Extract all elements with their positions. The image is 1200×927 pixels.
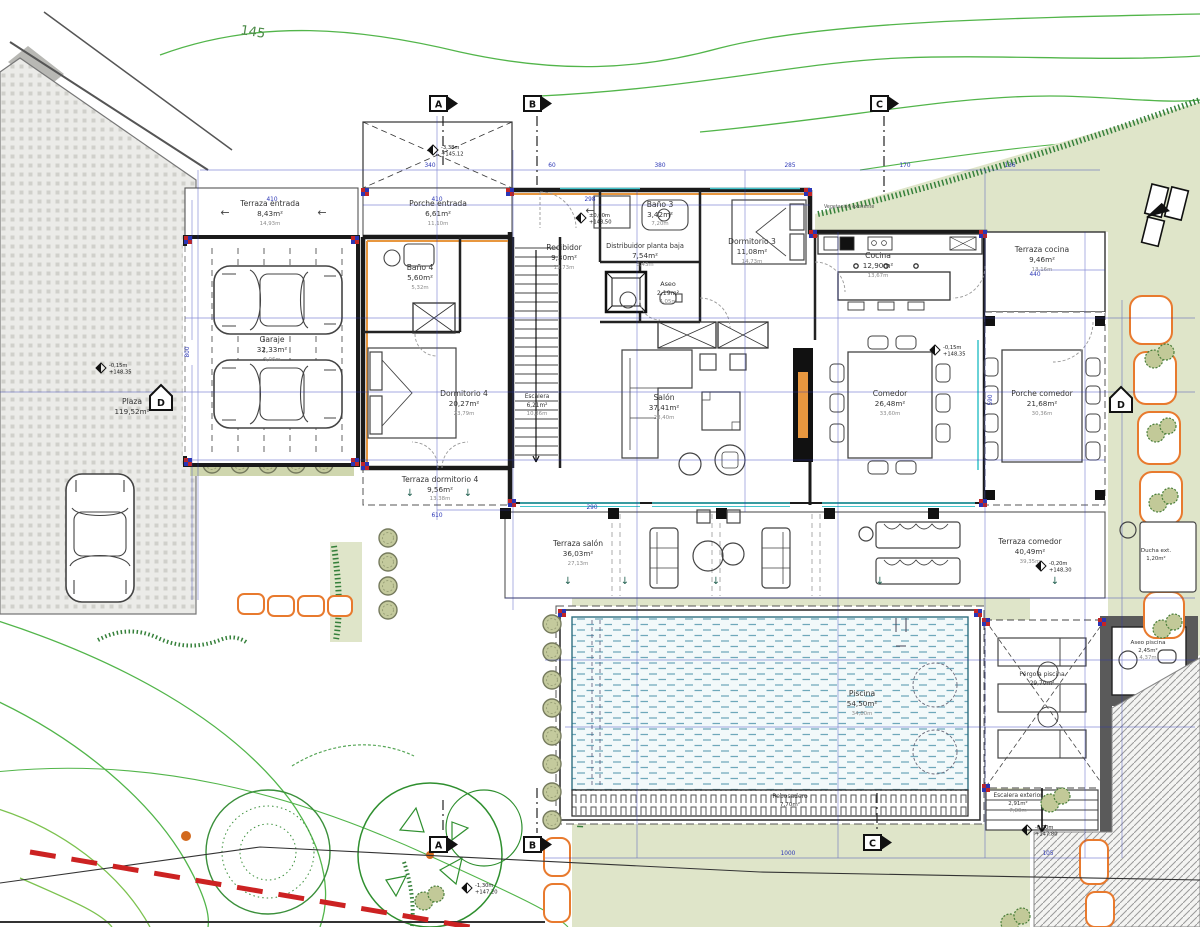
svg-text:60: 60: [548, 163, 556, 169]
svg-text:2,45m²: 2,45m²: [1138, 647, 1157, 654]
svg-text:2,91m²: 2,91m²: [1008, 800, 1027, 807]
svg-text:9,46m²: 9,46m²: [1029, 255, 1055, 264]
car-2: [214, 360, 342, 428]
svg-text:5,60m²: 5,60m²: [407, 273, 433, 282]
svg-text:40,49m²: 40,49m²: [1015, 547, 1046, 556]
svg-text:Terraza dormitorio 4: Terraza dormitorio 4: [401, 475, 479, 484]
svg-text:+148,50: +148,50: [589, 220, 612, 226]
floor-plan-canvas: ← ← ← ↓↓ ↓↓ ↓↓ ↓ 145 Vegetación existent…: [0, 0, 1200, 927]
svg-text:23,79m: 23,79m: [454, 411, 475, 417]
svg-text:-1,30m: -1,30m: [475, 883, 493, 889]
svg-text:34,80m: 34,80m: [852, 711, 873, 717]
svg-text:+145,12: +145,12: [441, 152, 464, 158]
svg-text:4,05m: 4,05m: [659, 299, 676, 305]
interior-stair: [515, 248, 558, 462]
svg-text:800: 800: [185, 346, 191, 357]
svg-text:C: C: [869, 839, 876, 850]
svg-text:12,90m²: 12,90m²: [863, 261, 894, 270]
svg-text:7,70m²: 7,70m²: [780, 801, 800, 808]
fireplace-core: [798, 372, 808, 438]
contour-elevation-label: 145: [239, 23, 266, 42]
section-marker-b-top: B: [524, 96, 552, 111]
room-label-recibidor: Recibidor9,30m²13,73m: [546, 243, 582, 271]
svg-text:Dormitorio 3: Dormitorio 3: [728, 237, 776, 246]
svg-text:Salón: Salón: [653, 393, 674, 402]
svg-text:Terraza comedor: Terraza comedor: [997, 537, 1062, 546]
svg-text:54,50m²: 54,50m²: [847, 699, 878, 708]
svg-text:Baño 3: Baño 3: [647, 200, 674, 209]
svg-text:11,10m: 11,10m: [428, 221, 449, 227]
level-marker-lateral: -0,15m+148,35: [930, 345, 966, 358]
svg-text:380: 380: [654, 163, 665, 169]
svg-text:Distribuidor planta baja: Distribuidor planta baja: [606, 242, 684, 250]
svg-text:Terraza cocina: Terraza cocina: [1014, 245, 1069, 254]
svg-text:7,54m²: 7,54m²: [632, 251, 658, 260]
svg-text:290: 290: [586, 505, 597, 511]
svg-text:Ducha ext.: Ducha ext.: [1141, 548, 1172, 554]
svg-text:±0,00m: ±0,00m: [589, 213, 610, 219]
svg-text:590: 590: [988, 394, 994, 405]
svg-text:←: ←: [317, 206, 326, 219]
svg-text:1,20m²: 1,20m²: [1146, 555, 1165, 562]
svg-text:↓: ↓: [564, 576, 572, 587]
trees: [0, 745, 522, 927]
svg-text:-0,20m: -0,20m: [1049, 561, 1067, 567]
svg-text:33,60m: 33,60m: [880, 411, 901, 417]
svg-text:A: A: [435, 100, 443, 111]
svg-text:↓: ↓: [876, 576, 884, 587]
kitchen-fittings: [818, 234, 982, 310]
svg-text:6,61m²: 6,61m²: [425, 209, 451, 218]
floor-plan-page: ← ← ← ↓↓ ↓↓ ↓↓ ↓ 145 Vegetación existent…: [0, 0, 1200, 927]
svg-text:440: 440: [1029, 272, 1040, 278]
svg-text:Garaje: Garaje: [259, 335, 284, 344]
svg-text:+148,35: +148,35: [109, 370, 132, 376]
room-label-salon: Salón37,41m²28,40m: [649, 393, 680, 421]
section-marker-a-top: A: [430, 96, 458, 111]
svg-text:Aseo: Aseo: [660, 280, 676, 288]
svg-text:-0,70m: -0,70m: [1035, 825, 1053, 831]
svg-text:+148,30: +148,30: [1049, 568, 1072, 574]
svg-text:↓: ↓: [712, 576, 720, 587]
svg-text:5,32m: 5,32m: [411, 285, 428, 291]
svg-text:410: 410: [431, 197, 442, 203]
svg-text:Piscina: Piscina: [849, 689, 875, 698]
svg-text:Escalera: Escalera: [525, 394, 550, 400]
svg-text:340: 340: [424, 163, 435, 169]
svg-text:Pérgola piscina: Pérgola piscina: [1019, 671, 1065, 678]
svg-text:Porche comedor: Porche comedor: [1011, 389, 1073, 398]
svg-text:14,93m: 14,93m: [260, 221, 281, 227]
svg-text:↓: ↓: [406, 488, 414, 499]
svg-text:285: 285: [784, 163, 795, 169]
svg-text:↓: ↓: [1051, 576, 1059, 587]
svg-text:9,56m²: 9,56m²: [427, 485, 453, 494]
svg-text:-3,38m: -3,38m: [441, 145, 459, 151]
svg-text:↓: ↓: [621, 576, 629, 587]
svg-text:105: 105: [1042, 851, 1053, 857]
svg-text:Terraza salón: Terraza salón: [552, 539, 603, 548]
svg-text:Aseo piscina: Aseo piscina: [1130, 640, 1165, 646]
svg-text:2,19m²: 2,19m²: [657, 290, 680, 297]
svg-text:8,43m²: 8,43m²: [257, 209, 283, 218]
svg-text:37,41m²: 37,41m²: [649, 403, 680, 412]
svg-text:Comedor: Comedor: [873, 389, 908, 398]
svg-text:32,33m²: 32,33m²: [257, 345, 288, 354]
svg-text:136: 136: [1004, 163, 1015, 169]
svg-text:Dormitorio 4: Dormitorio 4: [440, 389, 488, 398]
svg-text:7,20m: 7,20m: [651, 221, 668, 227]
car-1: [214, 266, 342, 334]
svg-text:11,08m²: 11,08m²: [737, 247, 768, 256]
svg-text:10,36m: 10,36m: [527, 411, 548, 417]
svg-text:13,38m: 13,38m: [430, 496, 451, 502]
svg-text:9,06m: 9,06m: [263, 357, 280, 363]
svg-text:36,03m²: 36,03m²: [563, 549, 594, 558]
entrance-canopy: [363, 122, 512, 188]
svg-text:610: 610: [431, 513, 442, 519]
room-label-bano3: Baño 33,42m²7,20m: [647, 200, 674, 227]
svg-text:Recibidor: Recibidor: [546, 243, 582, 252]
svg-text:Cocina: Cocina: [865, 251, 891, 260]
svg-text:Baño 4: Baño 4: [407, 263, 434, 272]
svg-text:13,73m: 13,73m: [554, 265, 575, 271]
vegetation-label: Vegetación existente: [824, 203, 874, 210]
svg-text:3,42m²: 3,42m²: [647, 210, 673, 219]
pool: [572, 617, 968, 790]
svg-text:Rebosadero: Rebosadero: [772, 793, 808, 800]
svg-text:29,70m²: 29,70m²: [1030, 680, 1055, 687]
room-label-aseo: Aseo2,19m²4,05m: [657, 280, 680, 305]
level-marker-recibidor: ±0,00m+148,50: [576, 213, 612, 226]
svg-text:-0,15m: -0,15m: [943, 345, 961, 351]
svg-text:170: 170: [899, 163, 910, 169]
wardrobes: [413, 303, 768, 348]
svg-text:13,67m: 13,67m: [868, 273, 889, 279]
svg-text:D: D: [1117, 400, 1125, 411]
svg-text:B: B: [529, 841, 536, 852]
entry-terraces: [185, 188, 512, 237]
svg-text:119,52m²: 119,52m²: [114, 407, 149, 416]
svg-text:B: B: [529, 100, 536, 111]
car-3: [66, 474, 134, 602]
svg-text:↓: ↓: [464, 488, 472, 499]
svg-text:←: ←: [220, 206, 229, 219]
svg-text:+148,35: +148,35: [943, 352, 966, 358]
room-label-bano4: Baño 45,60m²5,32m: [407, 263, 434, 291]
svg-text:26,48m²: 26,48m²: [875, 399, 906, 408]
svg-text:20,27m²: 20,27m²: [449, 399, 480, 408]
room-label-escalera: Escalera6,21m²10,36m: [525, 394, 550, 417]
svg-text:298: 298: [584, 197, 595, 203]
svg-text:7,80m: 7,80m: [1009, 808, 1026, 814]
svg-text:D: D: [157, 398, 165, 409]
svg-text:27,13m: 27,13m: [568, 561, 589, 567]
pool-pergola: [985, 620, 1105, 788]
svg-text:C: C: [876, 100, 883, 111]
svg-text:4,37m: 4,37m: [1139, 655, 1156, 661]
svg-text:Escalera exterior: Escalera exterior: [993, 793, 1043, 799]
svg-text:410: 410: [266, 197, 277, 203]
svg-text:21,68m²: 21,68m²: [1027, 399, 1058, 408]
svg-text:-0,15m: -0,15m: [109, 363, 127, 369]
svg-text:30,36m: 30,36m: [1032, 411, 1053, 417]
svg-text:9,30m²: 9,30m²: [551, 253, 577, 262]
svg-text:6,21m²: 6,21m²: [527, 402, 548, 409]
room-label-distribuidor: Distribuidor planta baja7,54m²3,43m: [606, 242, 684, 268]
svg-text:3,43m: 3,43m: [636, 262, 653, 268]
svg-text:A: A: [435, 841, 443, 852]
svg-text:28,40m: 28,40m: [654, 415, 675, 421]
svg-text:Plaza: Plaza: [122, 397, 142, 406]
pool-overflow-channel: [572, 790, 968, 816]
level-marker-jardin-bajo: -1,30m+147,20: [462, 883, 498, 896]
svg-text:14,73m: 14,73m: [742, 259, 763, 265]
svg-text:+147,80: +147,80: [1035, 832, 1058, 838]
living-room-furniture: [622, 350, 746, 475]
svg-text:1000: 1000: [781, 851, 796, 857]
svg-text:+147,20: +147,20: [475, 890, 498, 896]
